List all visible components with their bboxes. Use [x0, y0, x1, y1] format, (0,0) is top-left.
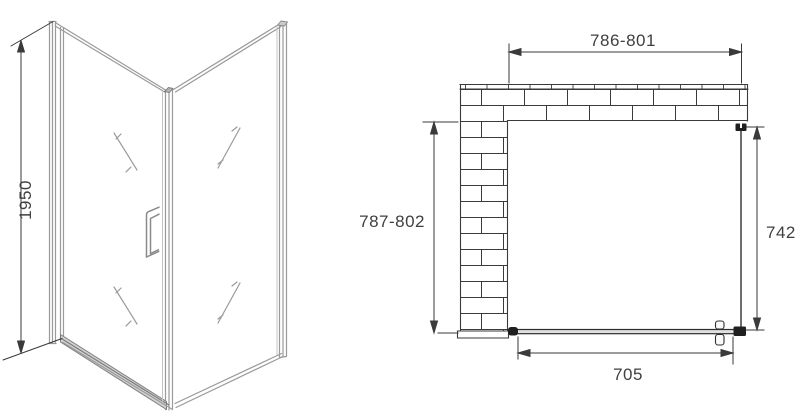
hinge-fitting	[508, 327, 518, 336]
side-panel-right-post	[278, 21, 288, 358]
wall-end-cap	[458, 331, 509, 338]
door-panel-plan	[517, 330, 736, 334]
right-glass-label: 742	[766, 223, 796, 242]
shower-enclosure-drawing: 1950	[0, 0, 800, 415]
corner-post-plan	[734, 327, 747, 337]
left-depth-label: 787-802	[359, 212, 425, 231]
technical-drawing-canvas: 1950	[0, 0, 800, 415]
bottom-door-label: 705	[613, 365, 643, 384]
top-width-label: 786-801	[590, 31, 656, 50]
wall-bracket	[736, 124, 747, 132]
height-dimension-label: 1950	[16, 180, 35, 220]
left-wall-bricks	[460, 89, 507, 331]
